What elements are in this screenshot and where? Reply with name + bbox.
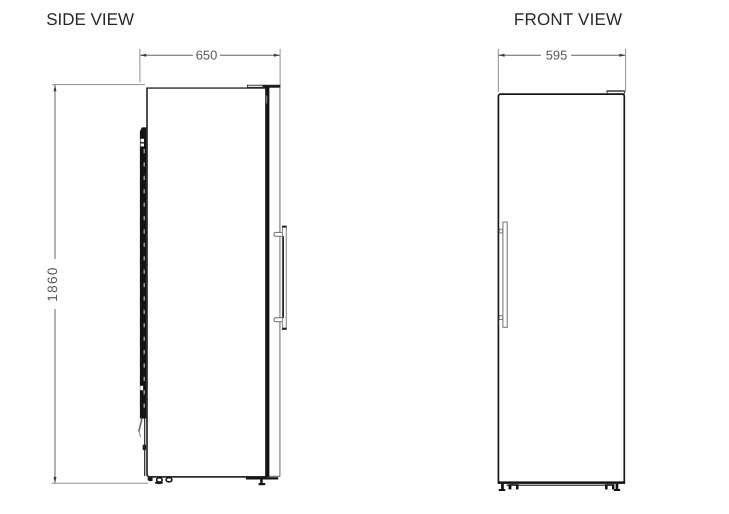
svg-text:650: 650 [196, 48, 218, 63]
svg-text:595: 595 [546, 48, 568, 63]
svg-text:SIDE VIEW: SIDE VIEW [46, 10, 134, 29]
svg-text:1860: 1860 [45, 266, 60, 301]
svg-text:FRONT VIEW: FRONT VIEW [514, 10, 622, 29]
